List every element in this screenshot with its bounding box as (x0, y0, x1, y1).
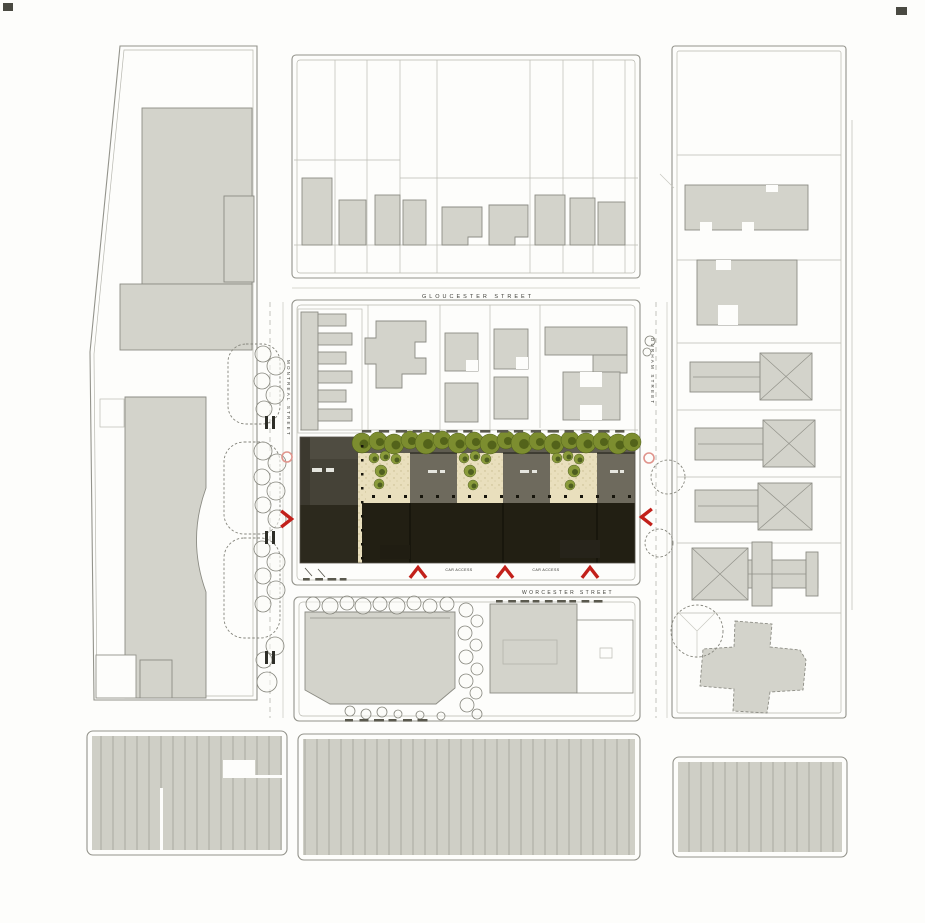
tree-icon (423, 599, 437, 613)
tree-icon (255, 497, 271, 513)
tree-icon (459, 603, 473, 617)
illegible-text (582, 600, 590, 603)
building (96, 655, 136, 698)
tree-icon (407, 596, 421, 610)
column-dot (372, 495, 375, 498)
illegible-text (594, 600, 603, 603)
tree-icon (456, 440, 465, 449)
column-dot (361, 459, 364, 462)
warehouse-block (298, 734, 640, 860)
tree-icon (254, 373, 270, 389)
tree-icon (254, 442, 272, 460)
roof (503, 452, 550, 503)
tree-icon (474, 455, 479, 460)
street-label-bottom: WORCESTER STREET (522, 590, 614, 596)
crossing-bar (272, 416, 275, 429)
tree-icon (395, 458, 400, 463)
column-dot (361, 515, 364, 518)
illegible-text (497, 430, 508, 433)
tree-icon (268, 454, 286, 472)
tree-icon (360, 440, 369, 449)
tree-icon (440, 597, 454, 611)
illegible-text (508, 600, 516, 603)
illegible-text (557, 600, 566, 603)
corner-artifact (3, 3, 13, 11)
tree-icon (440, 437, 448, 445)
tree-icon (423, 439, 433, 449)
illegible-text (360, 719, 369, 722)
illegible-text (569, 600, 576, 603)
illegible-text (514, 430, 523, 433)
tree-icon (266, 386, 284, 404)
tree-icon (472, 438, 480, 446)
tree-icon (578, 458, 583, 463)
illegible-text (480, 430, 490, 433)
tree-icon (569, 484, 574, 489)
column-dot (388, 495, 391, 498)
tree-icon (384, 455, 389, 460)
building (305, 612, 455, 704)
tree-icon (460, 698, 474, 712)
illegible-text (345, 719, 353, 722)
tree-icon (488, 441, 497, 450)
tree-icon (463, 457, 468, 462)
column-dot (420, 495, 423, 498)
tree-icon (572, 469, 578, 475)
tree-icon (378, 483, 383, 488)
tree-icon (355, 598, 371, 614)
tree-icon (377, 707, 387, 717)
column-dot (361, 543, 364, 546)
building (125, 397, 206, 698)
column-dot (468, 495, 471, 498)
illegible-text (413, 430, 422, 433)
tree-icon (584, 440, 593, 449)
tree-icon (630, 439, 638, 447)
tree-icon (255, 596, 271, 612)
tree-icon (416, 711, 424, 719)
tree-icon (306, 597, 320, 611)
column-dot (532, 495, 535, 498)
tree-icon (254, 469, 270, 485)
building (302, 178, 332, 245)
column-dot (361, 473, 364, 476)
tree-icon (257, 672, 277, 692)
tree-icon (255, 346, 271, 362)
tree-icon (373, 597, 387, 611)
building (494, 377, 528, 419)
crossing-bar (265, 531, 268, 544)
illegible-text (396, 430, 407, 433)
illegible-text (581, 430, 591, 433)
illegible-text (315, 578, 323, 581)
tree-icon (267, 357, 285, 375)
building (120, 284, 252, 350)
illegible-text (403, 719, 412, 722)
tree-icon (379, 469, 385, 475)
roof (410, 452, 457, 503)
tree-icon (322, 598, 338, 614)
building (339, 200, 366, 245)
column-dot (596, 495, 599, 498)
building (403, 200, 426, 245)
column-dot (628, 495, 631, 498)
tree-icon (468, 469, 474, 475)
illegible-text (303, 578, 310, 581)
tree-icon (567, 455, 572, 460)
tree-icon (556, 457, 561, 462)
corner-artifact (896, 7, 907, 15)
tree-icon (267, 581, 285, 599)
tree-icon (256, 401, 272, 417)
tree-icon (459, 674, 473, 688)
illegible-text (565, 430, 574, 433)
illegible-text (520, 600, 529, 603)
illegible-text (430, 430, 440, 433)
building (545, 327, 627, 355)
tree-icon (536, 438, 544, 446)
warehouse-block (673, 757, 847, 857)
crossing-bar (272, 651, 275, 664)
illegible-text (379, 430, 389, 433)
dark-building-south (362, 503, 635, 563)
column-dot (361, 501, 364, 504)
tree-icon (552, 441, 561, 450)
tree-icon (643, 348, 651, 356)
column-dot (500, 495, 503, 498)
tree-icon (472, 484, 477, 489)
site-plan-svg: GLOUCESTER STREET WORCESTER STREET MONTR… (0, 0, 925, 923)
tree-icon (472, 709, 482, 719)
tree-icon (471, 663, 483, 675)
crossing-bar (272, 531, 275, 544)
illegible-text (389, 719, 397, 722)
column-dot (361, 487, 364, 490)
column-dot (361, 557, 364, 560)
illegible-text (374, 719, 384, 722)
illegible-text (362, 430, 371, 433)
building (577, 620, 633, 693)
tree-icon (458, 626, 472, 640)
illegible-text (548, 430, 559, 433)
column-dot (436, 495, 439, 498)
street-label-left: MONTREAL STREET (286, 360, 291, 437)
column-dot (516, 495, 519, 498)
warehouse-block (87, 731, 287, 855)
crossing-bar (265, 651, 268, 664)
column-dot (564, 495, 567, 498)
tree-icon (459, 650, 473, 664)
block-center (292, 300, 641, 585)
tree-icon (470, 687, 482, 699)
tree-icon (485, 458, 490, 463)
tree-icon (568, 437, 576, 445)
building (570, 198, 595, 245)
column-dot (452, 495, 455, 498)
tree-icon (376, 438, 384, 446)
illegible-text (328, 578, 337, 581)
building (697, 260, 797, 325)
tree-icon (600, 438, 608, 446)
tree-icon (519, 439, 529, 449)
illegible-text (418, 719, 428, 722)
access-label: CAR ACCESS (532, 568, 559, 572)
building (140, 660, 172, 698)
illegible-text (446, 430, 457, 433)
tree-icon (345, 706, 355, 716)
dark-building-west (300, 437, 358, 563)
column-dot (361, 529, 364, 532)
tree-icon (255, 568, 271, 584)
illegible-text (463, 430, 472, 433)
access-label: CAR ACCESS (445, 568, 472, 572)
tree-icon (394, 710, 402, 718)
column-dot (404, 495, 407, 498)
development-site (300, 431, 641, 577)
column-dot (484, 495, 487, 498)
illegible-text (545, 600, 553, 603)
street-label-right: DURHAM STREET (650, 338, 655, 405)
illegible-text (340, 578, 347, 581)
illegible-text (533, 600, 540, 603)
building (375, 195, 400, 245)
building (598, 202, 625, 245)
tree-icon (361, 709, 371, 719)
illegible-text (496, 600, 503, 603)
column-dot (580, 495, 583, 498)
building (535, 195, 565, 245)
tree-icon (267, 482, 285, 500)
tree-icon (256, 652, 272, 668)
tree-icon (373, 457, 378, 462)
illegible-text (531, 430, 541, 433)
crossing-bar (265, 416, 268, 429)
building (224, 196, 254, 282)
column-dot (361, 445, 364, 448)
tree-icon (437, 712, 445, 720)
building (593, 355, 627, 373)
site-plan-image: GLOUCESTER STREET WORCESTER STREET MONTR… (0, 0, 925, 923)
tree-icon (392, 441, 401, 450)
column-dot (548, 495, 551, 498)
tree-icon (340, 596, 354, 610)
column-dot (612, 495, 615, 498)
illegible-text (615, 430, 624, 433)
tree-icon (389, 598, 405, 614)
tree-icon (470, 639, 482, 651)
tree-icon (267, 553, 285, 571)
building (445, 383, 478, 422)
street-label-top: GLOUCESTER STREET (422, 294, 534, 300)
tree-icon (471, 615, 483, 627)
illegible-text (598, 430, 609, 433)
